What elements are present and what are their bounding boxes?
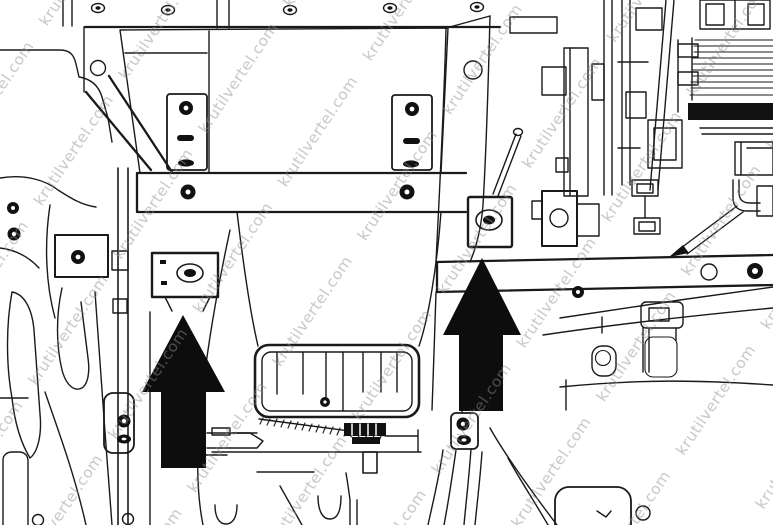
watermark-layer <box>0 0 773 525</box>
manual-illustration-page: krutilvertel.com <box>0 0 773 525</box>
technical-illustration: krutilvertel.com <box>0 0 773 525</box>
